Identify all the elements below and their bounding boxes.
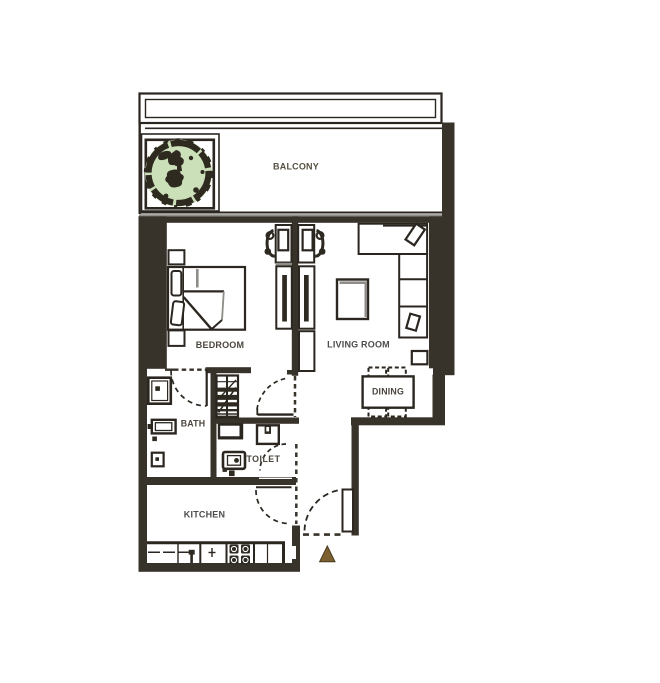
- svg-text:TOILET: TOILET: [246, 454, 280, 464]
- svg-text:LIVING ROOM: LIVING ROOM: [327, 340, 390, 350]
- svg-text:KITCHEN: KITCHEN: [184, 510, 225, 520]
- svg-text:BEDROOM: BEDROOM: [196, 340, 244, 350]
- svg-text:BALCONY: BALCONY: [273, 162, 319, 172]
- svg-text:BATH: BATH: [181, 419, 206, 429]
- svg-text:DINING: DINING: [372, 387, 404, 397]
